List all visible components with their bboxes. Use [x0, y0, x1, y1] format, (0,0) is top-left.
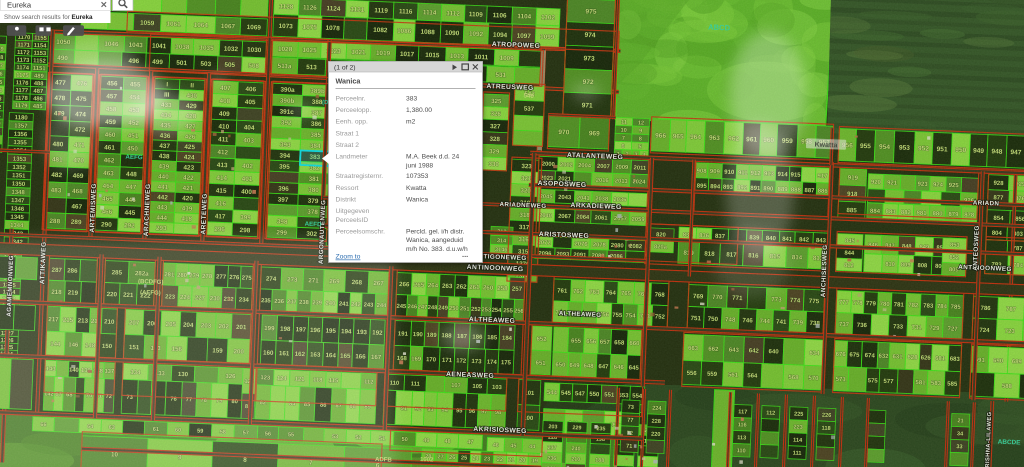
svg-text:Kwatta: Kwatta — [406, 185, 427, 192]
svg-text:Perceelnr.: Perceelnr. — [336, 96, 366, 103]
svg-text:M.A. Beek d.d. 24: M.A. Beek d.d. 24 — [406, 154, 459, 161]
svg-text:Perceelsomschr.: Perceelsomschr. — [336, 228, 386, 235]
svg-text:PerceelsID: PerceelsID — [336, 217, 369, 224]
svg-text:Perceelopp.: Perceelopp. — [336, 107, 372, 114]
svg-text:m2: m2 — [406, 119, 416, 126]
svg-text:Ressort: Ressort — [336, 185, 359, 192]
svg-text:Landmeter: Landmeter — [336, 154, 369, 161]
svg-text:383: 383 — [406, 96, 417, 103]
svg-text:Percld. gel. i/h distr.: Percld. gel. i/h distr. — [406, 228, 464, 235]
svg-text:Uitgegeven: Uitgegeven — [336, 208, 370, 215]
svg-text:Straatregisternr.: Straatregisternr. — [336, 173, 384, 180]
svg-text:m/h No. 383. d.u.w/h: m/h No. 383. d.u.w/h — [406, 246, 468, 253]
svg-text:1,380.00: 1,380.00 — [406, 107, 432, 114]
svg-text:Wanica: Wanica — [406, 196, 428, 203]
svg-text:107353: 107353 — [406, 173, 429, 180]
svg-text:Straat 1: Straat 1 — [336, 130, 360, 137]
svg-text:Straat 2: Straat 2 — [336, 142, 360, 149]
svg-text:Show search results for Eureka: Show search results for Eureka — [4, 14, 93, 21]
svg-text:Distrikt: Distrikt — [336, 196, 357, 203]
svg-text:(1 of 2): (1 of 2) — [334, 65, 356, 72]
svg-text:Wanica: Wanica — [336, 77, 362, 86]
svg-text:Zoom to: Zoom to — [336, 254, 361, 261]
svg-text:Wanica, aangeduid: Wanica, aangeduid — [406, 237, 463, 244]
svg-text:Eenh. opp.: Eenh. opp. — [336, 119, 368, 126]
svg-text:...: ... — [462, 250, 468, 259]
svg-text:Eureka: Eureka — [7, 0, 32, 9]
svg-text:juni 1988: juni 1988 — [405, 162, 433, 169]
